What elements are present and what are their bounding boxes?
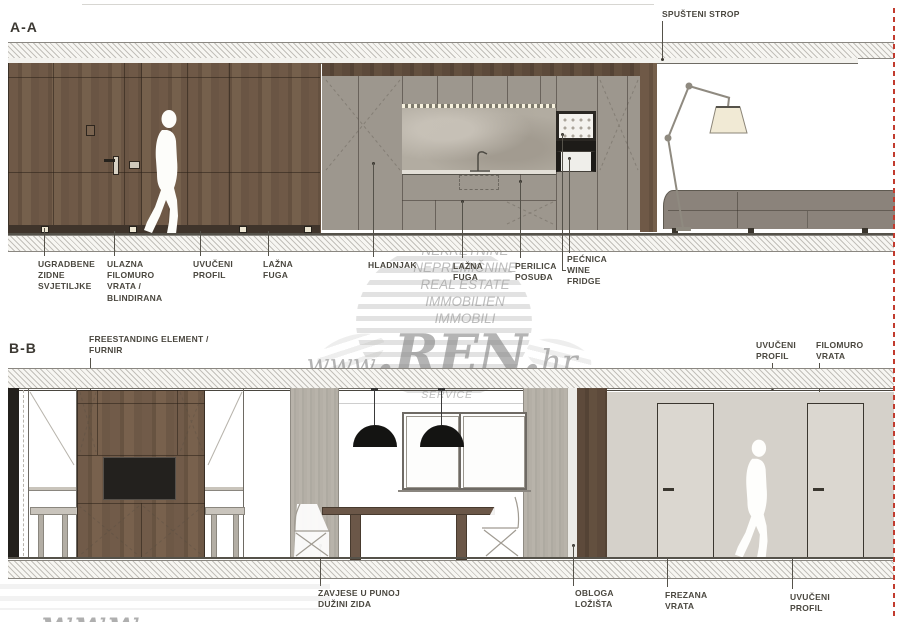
leader-line (562, 134, 563, 270)
tv-screen (103, 457, 176, 500)
sofa-seam (807, 211, 808, 228)
curtain-panel (290, 388, 339, 558)
dining-window-inner-frame (463, 416, 525, 488)
cabinet-joint (358, 76, 359, 230)
table-leg (350, 514, 361, 560)
leader-line (462, 201, 463, 258)
label-lazna-fuga-1: LAŽNA FUGA (263, 259, 293, 281)
kitchen-soffit (322, 63, 640, 76)
flush-door (807, 403, 864, 558)
sofa-seam (737, 192, 738, 228)
element-joint (177, 390, 178, 455)
label-uvuceni-profil-bb-top: UVUČENI PROFIL (756, 340, 796, 362)
label-obloga-lozista: OBLOGA LOŽIŠTA (575, 588, 614, 610)
table-leg (456, 514, 467, 560)
flush-door (657, 403, 714, 558)
section-bb-title: B-B (9, 340, 37, 356)
wood-panel-joint (229, 63, 230, 234)
watermark-remnant-stripes (0, 584, 330, 610)
bb-dashed-guide (23, 390, 24, 556)
bench-leg (62, 514, 68, 559)
door-handle (813, 488, 824, 491)
label-perilica-posuda: PERILICA POSUĐA (515, 261, 557, 283)
section-aa-title: A-A (10, 19, 38, 35)
leader-line (792, 557, 793, 589)
bench-leg (38, 514, 44, 559)
leader-line (569, 158, 570, 253)
bb-ceiling-slab (8, 368, 894, 389)
dining-window-mullion (459, 414, 461, 488)
label-filomuro-vrata-bb: FILOMURO VRATA (816, 340, 863, 362)
label-freestanding-element: FREESTANDING ELEMENT / FURNIR (89, 334, 209, 356)
watermark-text-line: IMMOBILIEN (380, 294, 550, 309)
leader-line (520, 181, 521, 258)
person-silhouette (143, 110, 191, 234)
door-handle (663, 488, 674, 491)
window-frame (28, 388, 29, 558)
pendant-cord (441, 388, 442, 425)
label-uvuceni-profil-aa: UVUČENI PROFIL (193, 259, 233, 281)
leader-line (114, 231, 115, 256)
leader-line (373, 163, 374, 257)
sofa-seat-line (668, 210, 894, 211)
wood-panel-joint (8, 77, 320, 78)
door-peephole (86, 125, 95, 136)
lamp-shade (710, 107, 747, 133)
cabinet-joint (435, 200, 436, 230)
architectural-elevation-sheet: NEKRETNINE NEPREMIČNINE REAL ESTATE IMMO… (0, 0, 900, 622)
dishwasher-outline (459, 175, 499, 190)
cabinet-joint (402, 200, 556, 201)
wall-light (41, 226, 49, 233)
wood-panel-joint (141, 63, 142, 234)
cabinet-joint (597, 76, 598, 230)
leader-line (44, 228, 45, 256)
wall-light (239, 226, 247, 233)
dining-table-top (322, 507, 495, 515)
bb-curtain-track-panel (8, 388, 19, 558)
aa-ceiling-slab (8, 42, 894, 59)
leader-line (667, 557, 668, 587)
wall-strip (568, 388, 577, 558)
door-handle-lever (104, 159, 115, 162)
person-silhouette (734, 438, 780, 560)
window-sill (205, 487, 243, 491)
leader-spusteni-strop (662, 21, 663, 60)
wall-light (304, 226, 312, 233)
fireplace-cladding (577, 388, 607, 558)
label-zavjese: ZAVJESE U PUNOJ DUŽINI ZIDA (318, 588, 400, 610)
window-frame (243, 388, 244, 558)
cabinet-joint (540, 76, 541, 105)
label-pecnica-wine-fridge: PEĆNICA WINE FRIDGE (567, 254, 607, 288)
pendant-lamp (353, 425, 397, 447)
window-sill (29, 487, 76, 491)
cabinet-joint (437, 76, 438, 105)
element-joint (97, 390, 98, 455)
cabinet-joint (627, 76, 628, 230)
curtain-panel (523, 388, 570, 558)
leader-line (573, 545, 574, 586)
element-joint (77, 455, 205, 456)
door-keypad (129, 161, 140, 169)
leader-tick (562, 270, 566, 271)
cabinet-joint (507, 76, 508, 105)
element-joint (77, 403, 205, 404)
label-hladnjak: HLADNJAK (368, 260, 417, 271)
bench-leg (211, 514, 217, 559)
bb-floor-line (8, 557, 894, 559)
section-cut-line (893, 8, 895, 620)
leader-dot (661, 58, 664, 61)
sheet-top-line (82, 4, 654, 5)
kitchen-wood-column (640, 63, 657, 232)
dining-chair-right (482, 497, 520, 557)
aa-floor-slab (8, 235, 894, 252)
stone-backsplash (402, 108, 556, 170)
wood-panel-joint (53, 63, 54, 234)
wood-panel-joint (124, 63, 125, 234)
watermark-corner-text: www (42, 612, 142, 622)
leader-line (200, 231, 201, 256)
watermark-corner-fragment: www (42, 612, 172, 622)
dining-window-sill (398, 490, 531, 492)
element-joint (141, 503, 142, 558)
label-frezana-vrata: FREZANA VRATA (665, 590, 707, 612)
leader-line (320, 545, 321, 586)
label-ulazna-filomuro-vrata: ULAZNA FILOMURO VRATA / BLINDIRANA (107, 259, 162, 304)
cabinet-joint (472, 76, 473, 105)
label-ugradbene-zidne-svjetiljke: UGRADBENE ZIDNE SVJETILJKE (38, 259, 95, 293)
leader-line (268, 231, 269, 256)
label-spusteni-strop: SPUŠTENI STROP (662, 9, 740, 20)
label-uvuceni-profil-bb-bottom: UVUČENI PROFIL (790, 592, 830, 614)
label-lazna-fuga-2: LAŽNA FUGA (453, 261, 483, 283)
bb-floor-slab (8, 560, 894, 579)
bench-leg (233, 514, 239, 559)
wall-light (129, 226, 137, 233)
pendant-cord (374, 388, 375, 425)
